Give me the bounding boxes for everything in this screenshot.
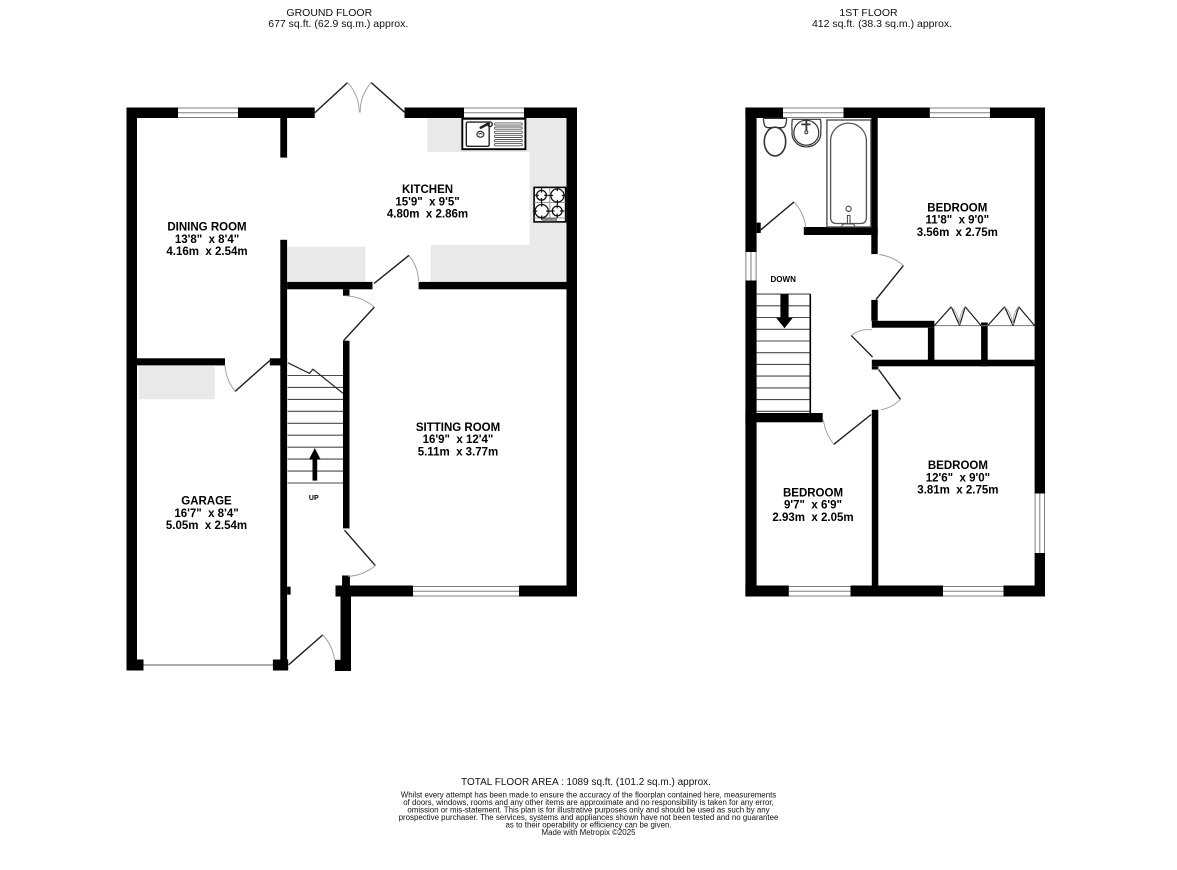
svg-text:5.05m x 2.54m: 5.05m x 2.54m [166, 520, 247, 532]
svg-text:13'8" x 8'4": 13'8" x 8'4" [175, 234, 239, 246]
svg-text:UP: UP [309, 495, 319, 502]
svg-text:KITCHEN: KITCHEN [402, 184, 453, 196]
svg-text:15'9" x 9'5": 15'9" x 9'5" [395, 196, 459, 208]
svg-text:5.11m x 3.77m: 5.11m x 3.77m [418, 446, 499, 458]
svg-text:BEDROOM: BEDROOM [783, 487, 843, 499]
svg-text:4.16m x 2.54m: 4.16m x 2.54m [166, 246, 247, 258]
svg-text:412 sq.ft. (38.3 sq.m.) approx: 412 sq.ft. (38.3 sq.m.) approx. [812, 18, 952, 30]
svg-text:3.56m x 2.75m: 3.56m x 2.75m [917, 227, 998, 239]
svg-text:16'7" x 8'4": 16'7" x 8'4" [174, 508, 238, 520]
svg-text:BEDROOM: BEDROOM [928, 460, 988, 472]
svg-text:DOWN: DOWN [771, 275, 797, 284]
svg-text:GROUND FLOOR: GROUND FLOOR [286, 7, 372, 19]
svg-text:4.80m x 2.86m: 4.80m x 2.86m [387, 209, 468, 221]
svg-text:GARAGE: GARAGE [181, 496, 232, 508]
svg-text:1ST FLOOR: 1ST FLOOR [839, 7, 898, 19]
svg-text:Made with Metropix ©2025: Made with Metropix ©2025 [542, 828, 637, 837]
svg-text:12'6" x 9'0": 12'6" x 9'0" [926, 472, 990, 484]
svg-text:TOTAL FLOOR AREA : 1089 sq.ft.: TOTAL FLOOR AREA : 1089 sq.ft. (101.2 sq… [461, 777, 711, 788]
svg-text:16'9" x 12'4": 16'9" x 12'4" [423, 434, 494, 446]
svg-text:3.81m x 2.75m: 3.81m x 2.75m [917, 485, 998, 497]
svg-text:11'8" x 9'0": 11'8" x 9'0" [925, 215, 989, 227]
svg-text:DINING ROOM: DINING ROOM [167, 222, 246, 234]
svg-text:BEDROOM: BEDROOM [927, 203, 987, 215]
svg-text:677 sq.ft. (62.9 sq.m.) approx: 677 sq.ft. (62.9 sq.m.) approx. [268, 18, 408, 30]
svg-text:2.93m x 2.05m: 2.93m x 2.05m [772, 512, 853, 524]
svg-text:9'7" x 6'9": 9'7" x 6'9" [784, 500, 842, 512]
svg-text:SITTING ROOM: SITTING ROOM [416, 422, 500, 434]
